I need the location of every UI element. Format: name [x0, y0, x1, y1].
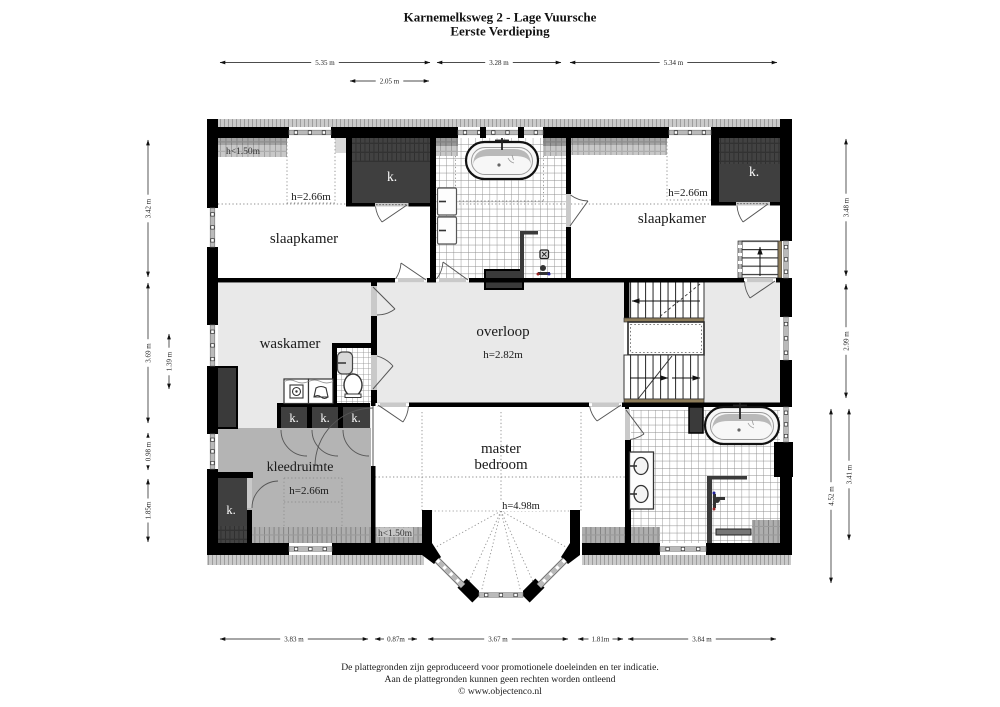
svg-text:h=2.82m: h=2.82m [483, 349, 523, 361]
svg-text:3.84 m: 3.84 m [692, 636, 712, 644]
svg-text:1.39 m: 1.39 m [166, 351, 174, 371]
svg-text:slaapkamer: slaapkamer [270, 231, 338, 247]
svg-text:3.28 m: 3.28 m [489, 59, 509, 67]
svg-text:h<1.50m: h<1.50m [226, 147, 261, 157]
svg-text:k.: k. [351, 411, 360, 425]
svg-text:h=2.66m: h=2.66m [289, 485, 329, 497]
svg-text:© www.objectenco.nl: © www.objectenco.nl [458, 686, 542, 697]
svg-text:De plattegronden zijn geproduc: De plattegronden zijn geproduceerd voor … [341, 662, 659, 673]
svg-text:Karnemelksweg 2 - Lage Vuursch: Karnemelksweg 2 - Lage Vuursche [404, 10, 597, 25]
svg-text:1.81m: 1.81m [592, 636, 610, 644]
svg-text:3.69 m: 3.69 m [145, 343, 153, 363]
svg-text:3.67 m: 3.67 m [488, 636, 508, 644]
svg-text:overloop: overloop [476, 324, 529, 340]
svg-text:kleedruimte: kleedruimte [267, 460, 334, 475]
svg-text:h=4.98m: h=4.98m [502, 501, 540, 512]
svg-text:0.98 m: 0.98 m [145, 441, 153, 461]
svg-text:k.: k. [289, 411, 298, 425]
svg-text:Eerste Verdieping: Eerste Verdieping [450, 24, 550, 39]
svg-text:k.: k. [387, 169, 397, 184]
svg-text:k.: k. [226, 503, 235, 517]
svg-text:3.83 m: 3.83 m [284, 636, 304, 644]
svg-text:3.41 m: 3.41 m [846, 464, 854, 484]
svg-text:3.42 m: 3.42 m [145, 198, 153, 218]
svg-text:k.: k. [320, 411, 329, 425]
svg-text:3.48 m: 3.48 m [843, 197, 851, 217]
svg-text:h=2.66m: h=2.66m [291, 191, 331, 203]
svg-text:5.34 m: 5.34 m [664, 59, 684, 67]
svg-text:Aan de plattegronden kunnen ge: Aan de plattegronden kunnen geen rechten… [385, 674, 616, 685]
svg-text:waskamer: waskamer [260, 336, 321, 352]
svg-text:h<1.50m: h<1.50m [378, 529, 413, 539]
svg-text:h=2.66m: h=2.66m [668, 187, 708, 199]
svg-text:5.35 m: 5.35 m [315, 59, 335, 67]
svg-text:0.87m: 0.87m [387, 636, 405, 644]
svg-text:master: master [481, 441, 521, 457]
svg-text:bedroom: bedroom [474, 457, 528, 473]
svg-text:1.85m: 1.85m [145, 501, 153, 519]
svg-text:slaapkamer: slaapkamer [638, 211, 706, 227]
svg-text:2.05 m: 2.05 m [380, 78, 400, 86]
svg-text:4.52 m: 4.52 m [828, 486, 836, 506]
svg-text:k.: k. [749, 164, 759, 179]
svg-text:2.99 m: 2.99 m [843, 331, 851, 351]
